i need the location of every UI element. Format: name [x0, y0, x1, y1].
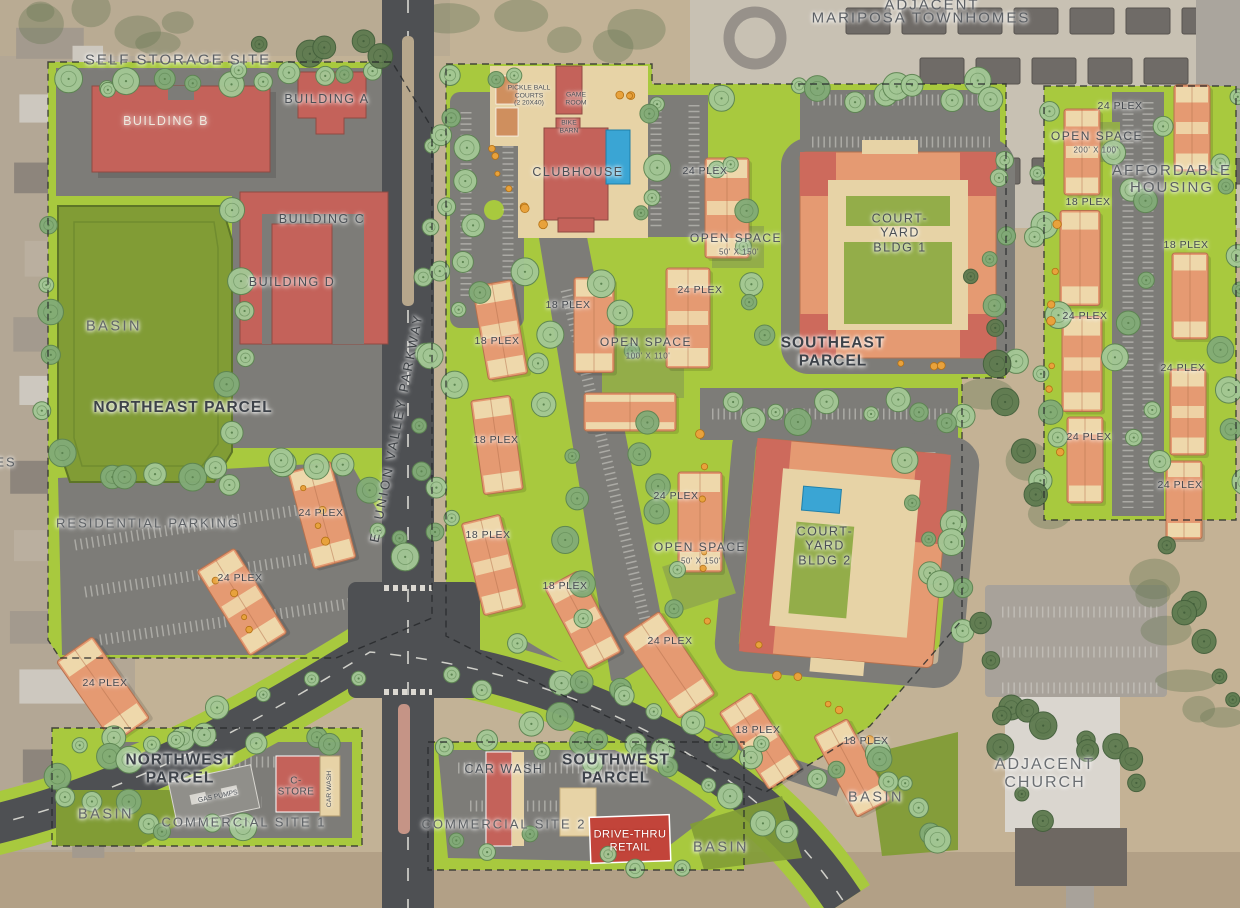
map-label: CLUBHOUSE	[532, 165, 623, 179]
map-label: SOUTHEAST PARCEL	[781, 334, 886, 369]
map-label: 18 PLEX	[546, 300, 591, 312]
map-label: 200' X 100'	[1073, 145, 1118, 154]
map-label: COURT- YARD BLDG 2	[797, 525, 854, 568]
map-label: 18 PLEX	[474, 435, 519, 447]
site-plan-map: ADJACENTMARIPOSA TOWNHOMESSELF STORAGE S…	[0, 0, 1240, 908]
map-label: 18 PLEX	[543, 581, 588, 593]
map-label: 18 PLEX	[1164, 240, 1209, 252]
map-label: 100' X 110'	[626, 351, 670, 360]
map-label: SOUTHWEST PARCEL	[562, 751, 670, 786]
map-label: NORTHEAST PARCEL	[93, 399, 272, 417]
map-label: RESIDENTIAL PARKING	[56, 517, 240, 532]
map-label: BUILDING C	[279, 212, 366, 226]
map-label: PICKLE BALL COURTS (2 20X40)	[508, 84, 551, 107]
map-label: GAME ROOM	[565, 91, 586, 106]
map-label: BIKE BARN	[560, 119, 579, 134]
map-label: MARIPOSA TOWNHOMES	[812, 9, 1031, 26]
map-label: 24 PLEX	[1158, 480, 1203, 492]
map-label: 24 PLEX	[678, 285, 723, 297]
map-label: ADJACENT CHURCH	[995, 756, 1095, 792]
map-label: 24 PLEX	[1067, 432, 1112, 444]
labels-layer: ADJACENTMARIPOSA TOWNHOMESSELF STORAGE S…	[0, 0, 1240, 908]
map-label: GAS PUMPS	[197, 789, 238, 805]
map-label: 18 PLEX	[1066, 197, 1111, 209]
map-label: 24 PLEX	[683, 166, 728, 178]
map-label: BASIN	[693, 840, 749, 857]
map-label: ES	[0, 456, 17, 471]
map-label: BUILDING B	[123, 114, 209, 128]
map-label: CAR WASH	[465, 762, 544, 776]
map-label: 24 PLEX	[299, 508, 344, 520]
map-label: CAR WASH	[326, 771, 334, 807]
map-label: NORTHWEST PARCEL	[126, 751, 235, 786]
map-label: 24 PLEX	[218, 573, 263, 585]
map-label: BUILDING A	[284, 92, 369, 106]
map-label: COURT- YARD BLDG 1	[872, 212, 929, 255]
map-label: 18 PLEX	[466, 530, 511, 542]
map-label: BUILDING D	[249, 275, 336, 289]
map-label: 18 PLEX	[736, 725, 781, 737]
map-label: BASIN	[78, 807, 134, 824]
map-label: COMMERCIAL SITE 1	[162, 816, 327, 831]
map-label: AFFORDABLE HOUSING	[1112, 162, 1232, 196]
map-label: E. UNION VALLEY PARKWAY	[367, 312, 426, 544]
map-label: 18 PLEX	[844, 736, 889, 748]
map-label: COMMERCIAL SITE 2	[422, 818, 587, 833]
map-label: OPEN SPACE	[654, 541, 746, 555]
map-label: OPEN SPACE	[1051, 130, 1143, 144]
map-label: SELF STORAGE SITE	[85, 51, 271, 68]
map-label: BASIN	[86, 319, 142, 336]
map-label: 24 PLEX	[1161, 363, 1206, 375]
map-label: 24 PLEX	[654, 491, 699, 503]
map-label: BASIN	[848, 790, 904, 807]
map-label: 24 PLEX	[83, 678, 128, 690]
map-label: 50' X 150'	[719, 247, 759, 256]
map-label: 24 PLEX	[648, 636, 693, 648]
map-label: 24 PLEX	[1063, 311, 1108, 323]
map-label: 18 PLEX	[475, 336, 520, 348]
map-label: C- STORE	[278, 776, 315, 799]
map-label: DRIVE-THRU RETAIL	[594, 828, 667, 853]
map-label: 24 PLEX	[1098, 101, 1143, 113]
map-label: OPEN SPACE	[600, 336, 692, 350]
map-label: OPEN SPACE	[690, 232, 782, 246]
map-label: 50' X 150'	[681, 556, 721, 565]
